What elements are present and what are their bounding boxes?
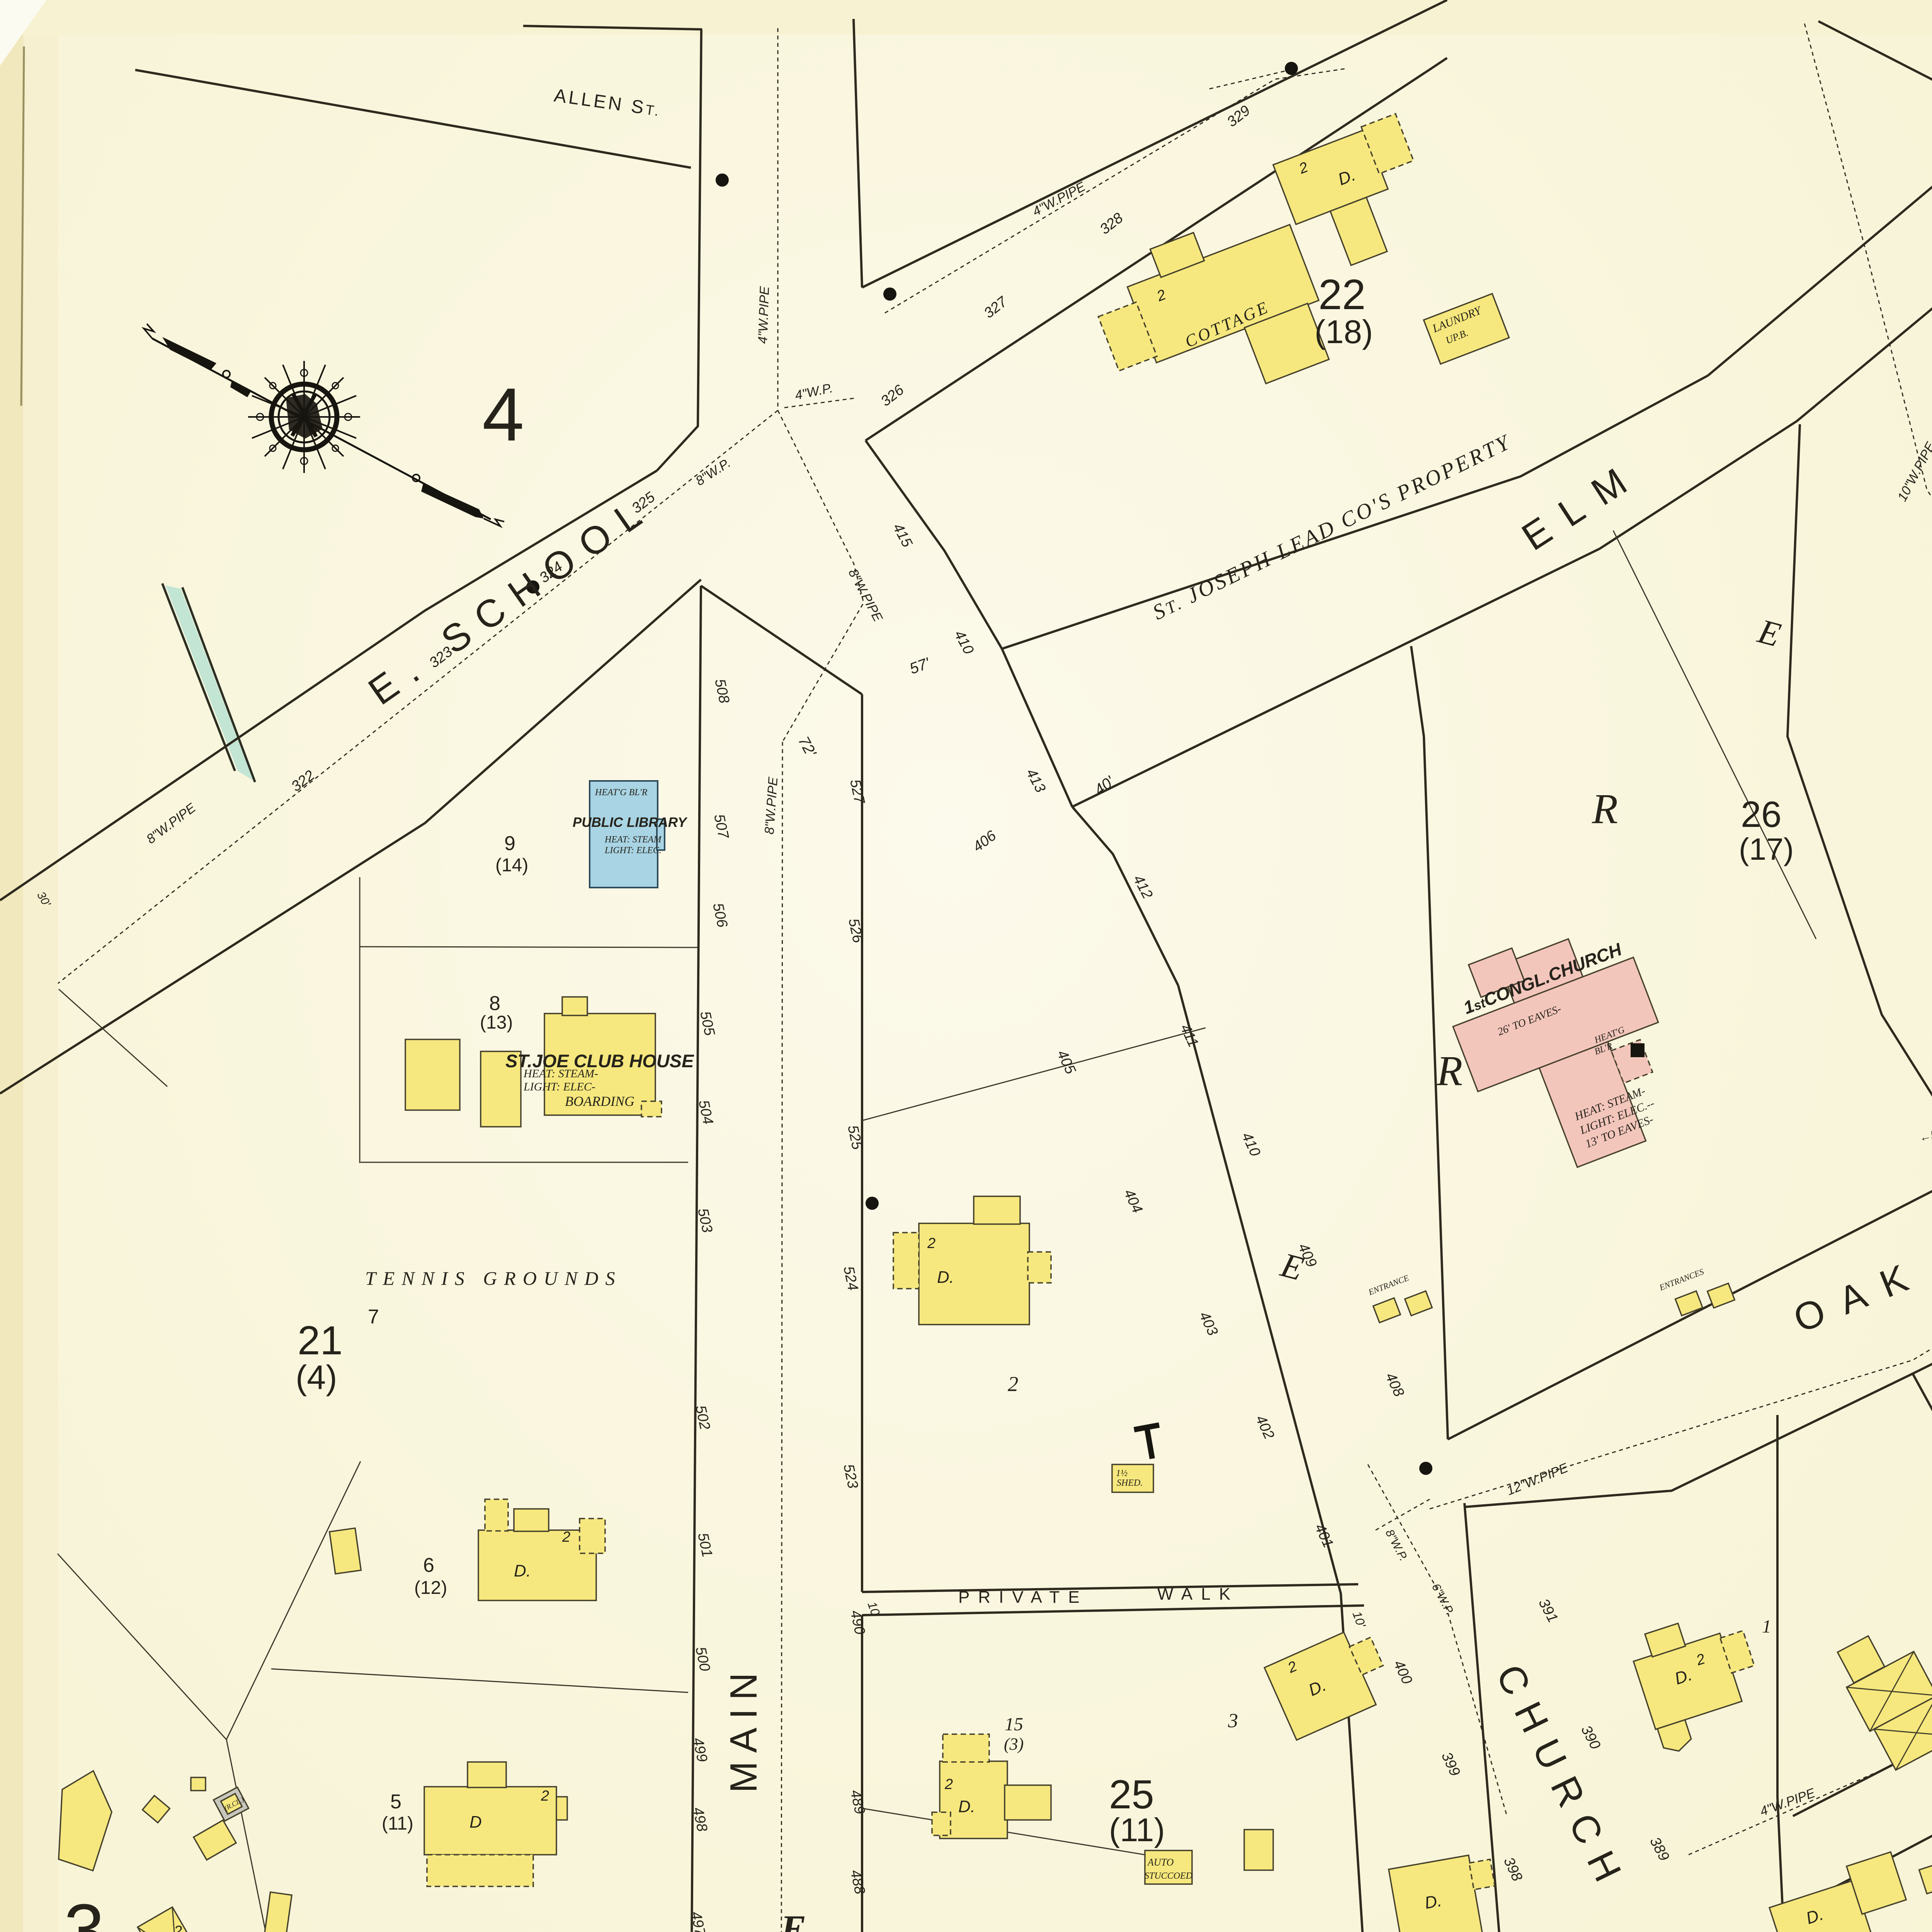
svg-text:D.: D. [1423, 1891, 1443, 1913]
svg-text:D.: D. [958, 1797, 975, 1816]
svg-text:TENNIS GROUNDS: TENNIS GROUNDS [365, 1267, 622, 1289]
svg-text:(3): (3) [1004, 1735, 1024, 1753]
svg-text:1: 1 [1762, 1616, 1771, 1637]
svg-text:25: 25 [1109, 1772, 1154, 1817]
svg-text:(12): (12) [414, 1578, 447, 1598]
svg-text:8: 8 [489, 992, 500, 1015]
svg-text:(11): (11) [1109, 1812, 1165, 1849]
svg-text:LIGHT: ELEC.: LIGHT: ELEC. [604, 845, 662, 855]
svg-text:E: E [780, 1907, 806, 1932]
svg-text:4"W.PIPE: 4"W.PIPE [755, 286, 772, 344]
svg-text:3: 3 [1228, 1710, 1238, 1732]
svg-text:26: 26 [1741, 794, 1782, 835]
svg-text:WALK: WALK [1157, 1585, 1239, 1604]
svg-text:2: 2 [562, 1529, 570, 1545]
svg-text:4: 4 [1357, 1929, 1367, 1932]
svg-text:5: 5 [390, 1791, 401, 1813]
svg-text:(11): (11) [382, 1813, 413, 1834]
svg-text:HEAT: STEAM-: HEAT: STEAM- [523, 1067, 598, 1080]
svg-text:HEAT: STEAM: HEAT: STEAM [604, 835, 662, 845]
svg-text:SHED.: SHED. [1117, 1478, 1143, 1488]
svg-text:1½: 1½ [1116, 1468, 1128, 1478]
svg-text:AUTO: AUTO [1147, 1857, 1174, 1868]
svg-text:LIGHT: ELEC-: LIGHT: ELEC- [523, 1080, 595, 1093]
svg-text:7: 7 [368, 1306, 379, 1328]
svg-text:3: 3 [64, 1889, 105, 1932]
svg-text:15: 15 [1005, 1714, 1023, 1735]
svg-text:4: 4 [482, 372, 524, 457]
svg-text:9: 9 [504, 832, 515, 855]
svg-text:2: 2 [541, 1788, 549, 1804]
svg-text:D.: D. [937, 1268, 954, 1287]
svg-text:2: 2 [944, 1776, 953, 1793]
svg-text:(13): (13) [480, 1012, 513, 1033]
svg-text:PRIVATE: PRIVATE [958, 1588, 1088, 1607]
svg-text:21: 21 [298, 1318, 343, 1363]
svg-text:HEAT'G BL'R: HEAT'G BL'R [595, 787, 648, 798]
svg-text:D: D [469, 1813, 482, 1832]
svg-text:R: R [1436, 1047, 1463, 1094]
svg-text:22: 22 [1318, 271, 1366, 318]
svg-text:D.: D. [514, 1561, 531, 1580]
svg-text:2: 2 [927, 1235, 935, 1252]
svg-text:MAIN: MAIN [722, 1664, 765, 1793]
svg-text:BOARDING: BOARDING [565, 1094, 634, 1109]
svg-text:2: 2 [173, 1923, 182, 1932]
svg-text:2: 2 [1008, 1372, 1019, 1396]
svg-text:(18): (18) [1315, 314, 1373, 350]
svg-text:PUBLIC LIBRARY: PUBLIC LIBRARY [573, 815, 688, 830]
svg-text:6: 6 [423, 1554, 434, 1577]
svg-text:(17): (17) [1739, 832, 1794, 866]
svg-text:R: R [1592, 785, 1618, 832]
svg-text:STUCCOED: STUCCOED [1145, 1871, 1192, 1881]
svg-text:(14): (14) [495, 855, 528, 876]
svg-text:(4): (4) [296, 1358, 337, 1396]
